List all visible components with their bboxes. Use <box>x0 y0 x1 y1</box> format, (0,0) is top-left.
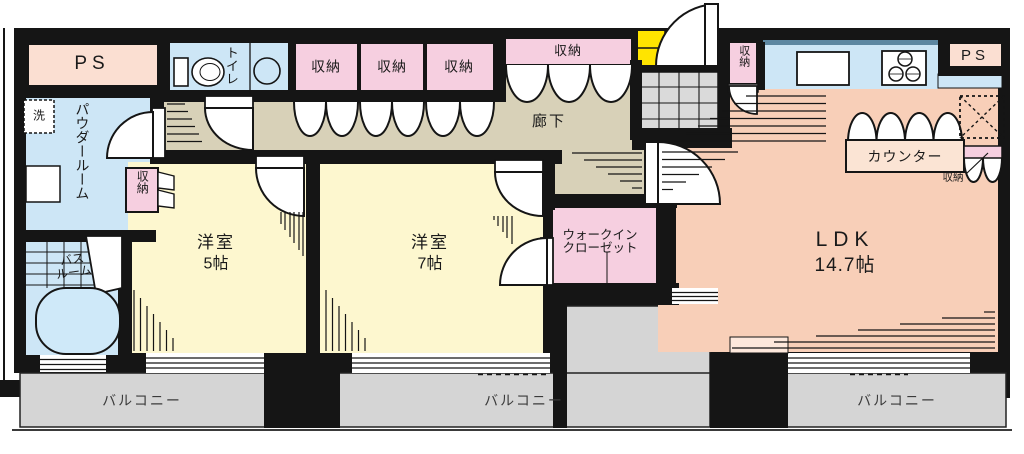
toilet-door-leaf <box>205 96 253 108</box>
balcony-divider-left <box>264 353 340 428</box>
toilet-tank-icon <box>174 58 188 86</box>
ldk-size-label: 14.7帖 <box>815 256 876 276</box>
ldk-ledge <box>730 337 788 353</box>
balcony-left-label: バルコニー <box>102 394 182 409</box>
room5-name-label: 洋室 <box>197 234 235 252</box>
sink-icon <box>797 52 849 85</box>
room5-size-label: 5帖 <box>204 257 229 274</box>
floor-plan: PS トイレ 収納 収納 収納 収納 廊下 パウダールーム 洗 収納 バス ルー… <box>0 0 1024 454</box>
storage-label-3: 収納 <box>444 60 474 75</box>
room7-name-label: 洋室 <box>411 234 449 252</box>
entrance-door-leaf <box>705 4 718 66</box>
ldk-name-label: LDK <box>816 229 875 251</box>
kitchen-counter-edge <box>763 40 938 45</box>
outer-boundary-line <box>3 28 5 382</box>
storage-label-1: 収納 <box>311 60 341 75</box>
ps-right-label: PS <box>961 48 989 64</box>
storage-right-label: 収納 <box>943 172 964 183</box>
balcony-right-label: バルコニー <box>857 394 937 409</box>
bath-room-label: バス ルーム <box>54 251 93 281</box>
room5-closet-door <box>158 190 174 208</box>
room5-closet-label: 収納 <box>136 170 149 194</box>
washer-label: 洗 <box>33 110 45 123</box>
ldk-door-leaf <box>645 142 658 204</box>
balcony-middle-label: バルコニー <box>484 394 564 409</box>
storage-label-wide: 収納 <box>554 44 582 58</box>
vanity-icon <box>26 166 60 202</box>
corridor-label: 廊下 <box>532 114 566 130</box>
storage-label-2: 収納 <box>377 60 407 75</box>
room5-closet-door <box>158 172 174 190</box>
room7-size-label: 7帖 <box>418 257 443 274</box>
room7-door-leaf <box>495 160 543 172</box>
bathtub-icon <box>36 288 120 354</box>
room5-door-leaf <box>256 156 304 168</box>
ps-left-label: PS <box>74 54 109 74</box>
corridor-floor-ext <box>553 150 646 196</box>
powder-room-label: パウダールーム <box>75 102 90 200</box>
kitchen-side-strip <box>938 74 1002 88</box>
wic-label: ウォークイン クローゼット <box>562 229 637 255</box>
toilet-label: トイレ <box>224 46 238 85</box>
storage-right-box <box>964 146 1002 158</box>
entry-closet-label: 収納 <box>737 45 749 67</box>
balcony-divider-right <box>710 353 788 428</box>
toilet-bowl-icon <box>192 58 224 86</box>
ground-line <box>12 429 1012 431</box>
counter-label: カウンター <box>868 150 943 165</box>
